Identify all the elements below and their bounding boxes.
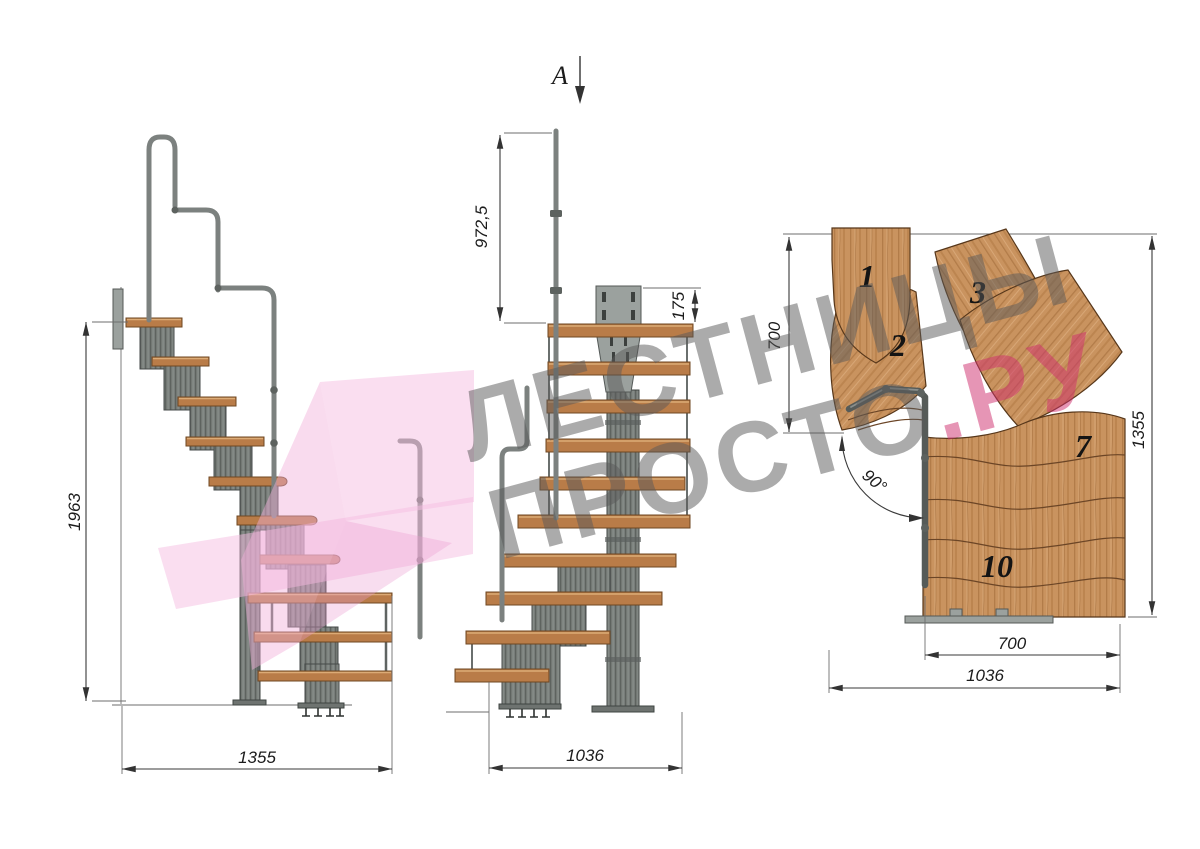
dimension-plan-total-depth: 1355 xyxy=(1128,236,1157,617)
section-arrow: A xyxy=(550,56,585,104)
dim-plan-flight-width-label: 700 xyxy=(998,634,1027,653)
dimension-plan-total-width: 1036 xyxy=(829,650,1120,693)
dim-front-rail-height-label: 972,5 xyxy=(472,205,491,248)
wall-bracket xyxy=(113,289,123,349)
section-label: A xyxy=(550,61,568,90)
anchor-bolts xyxy=(302,708,344,716)
dimension-side-height: 1963 xyxy=(65,322,128,701)
dim-plan-total-width-label: 1036 xyxy=(966,666,1004,685)
column-base-plate xyxy=(592,706,654,712)
dim-side-length-label: 1355 xyxy=(238,748,276,767)
rail-collar xyxy=(550,210,562,217)
column-base xyxy=(233,700,266,705)
dim-plan-total-depth-label: 1355 xyxy=(1129,411,1148,449)
step-number-10: 10 xyxy=(981,548,1013,584)
dim-side-height-label: 1963 xyxy=(65,493,84,531)
staircase-technical-drawing: 1963 1355 A xyxy=(0,0,1200,849)
step-number-7: 7 xyxy=(1075,428,1093,464)
dimension-front-width: 1036 xyxy=(446,682,682,774)
dim-front-width-label: 1036 xyxy=(566,746,604,765)
drawing-canvas: 1963 1355 A xyxy=(0,0,1200,849)
rail-collar xyxy=(550,287,562,294)
dimension-front-rail-height: 972,5 xyxy=(472,133,552,323)
